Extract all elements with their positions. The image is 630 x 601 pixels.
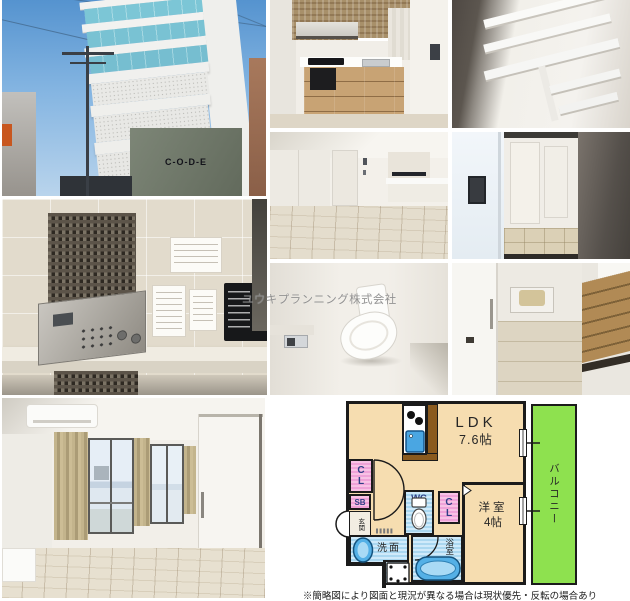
wall-monitor bbox=[430, 44, 440, 60]
kitchen-counter bbox=[402, 404, 427, 455]
right-section bbox=[582, 263, 630, 395]
cabinet-doors bbox=[452, 263, 498, 395]
wc-label: WC bbox=[411, 493, 427, 504]
mosaic-accent-lower bbox=[54, 371, 138, 395]
window-symbol bbox=[519, 497, 527, 525]
toilet-seat-line bbox=[345, 316, 392, 356]
toilet-remote bbox=[284, 335, 308, 348]
side-ledge bbox=[270, 325, 314, 335]
bathroom-label: 浴室 bbox=[444, 538, 454, 555]
building-sign: C-O-D-E bbox=[165, 157, 207, 167]
oven-storage bbox=[310, 68, 336, 90]
hood-edge bbox=[296, 36, 358, 39]
photo-lobby-mailpanel bbox=[2, 199, 267, 395]
shelf-board bbox=[558, 92, 618, 114]
notice-paper bbox=[170, 237, 222, 273]
entrance-label: 玄関 bbox=[356, 518, 363, 531]
floorplan-room-closet-top: CL bbox=[349, 459, 373, 493]
wall-corner bbox=[498, 132, 501, 259]
curtain bbox=[54, 432, 88, 540]
balcony-label: バルコニー bbox=[548, 463, 560, 526]
side-wall bbox=[2, 434, 52, 558]
wood-drawers bbox=[582, 271, 630, 363]
cooktop bbox=[308, 58, 344, 65]
cooktop-edge bbox=[392, 172, 426, 176]
counter-front bbox=[388, 184, 448, 202]
pole-crossarm bbox=[62, 52, 114, 55]
kitchen-sink bbox=[362, 59, 390, 67]
door-frame-dark bbox=[252, 199, 267, 331]
floorplan: CL SB 玄関 WC CL バルコニー LDK bbox=[270, 398, 630, 601]
intercom-panel bbox=[38, 290, 146, 365]
washroom-label: 洗面 bbox=[370, 543, 408, 555]
towel-bar bbox=[490, 299, 493, 329]
wall-segment bbox=[382, 562, 386, 588]
balcony-window bbox=[150, 444, 184, 524]
bedroom-label: 洋室 bbox=[466, 502, 520, 515]
low-cabinet bbox=[2, 548, 36, 582]
door-rail bbox=[199, 414, 263, 417]
shelf-unit bbox=[464, 0, 630, 128]
photo-washroom bbox=[452, 263, 630, 395]
dark-entry-door bbox=[578, 132, 630, 259]
paper-text-lines bbox=[193, 296, 213, 326]
floorplan-balcony: バルコニー bbox=[531, 404, 577, 585]
wall-monitor bbox=[468, 176, 486, 204]
laundry-pan bbox=[510, 287, 554, 313]
window-mullion bbox=[166, 446, 168, 522]
closet-label: CL bbox=[356, 465, 367, 487]
curtain bbox=[184, 446, 196, 514]
pole-crossarm bbox=[70, 62, 106, 64]
cabinet-latch bbox=[466, 337, 474, 343]
orange-sign bbox=[2, 124, 12, 146]
window-mullion bbox=[110, 440, 112, 532]
floorplan-room-closet-bedroom: CL bbox=[438, 491, 460, 524]
shoebox-label: SB bbox=[354, 498, 365, 507]
intercom-unit bbox=[363, 158, 367, 165]
floorplan-room-entrance: 玄関 bbox=[349, 511, 371, 537]
interior-door bbox=[332, 150, 358, 206]
wood-floor bbox=[2, 548, 265, 598]
balcony-window bbox=[88, 438, 134, 534]
interior-door bbox=[544, 146, 568, 218]
corner-shadow bbox=[410, 343, 448, 395]
shelf-divider bbox=[538, 65, 558, 121]
interior-door bbox=[510, 142, 540, 224]
floorplan-room-shoebox: SB bbox=[349, 494, 371, 510]
notice-paper bbox=[189, 289, 217, 331]
floorplan-washroom-extension bbox=[383, 560, 409, 585]
threshold bbox=[504, 254, 578, 259]
photo-entry-hall bbox=[452, 132, 630, 259]
distant-building bbox=[94, 466, 109, 480]
floorplan-room-bathroom bbox=[411, 535, 463, 582]
door-frame-top bbox=[504, 132, 578, 138]
paper-text-lines bbox=[156, 292, 182, 332]
floor bbox=[270, 114, 448, 128]
photo-kitchen bbox=[270, 0, 448, 128]
entrance-glass bbox=[60, 176, 132, 196]
company-watermark: ユウキプランニング株式会社 bbox=[242, 291, 397, 307]
intercom-button bbox=[131, 333, 141, 344]
floorplan-room-wc: WC bbox=[404, 490, 434, 535]
remote-screen bbox=[287, 338, 295, 346]
right-wall bbox=[410, 0, 448, 128]
closet-label: CL bbox=[444, 497, 455, 519]
wood-floor bbox=[270, 206, 448, 259]
ldk-label: LDK bbox=[438, 414, 514, 431]
bedroom-size: 4帖 bbox=[466, 517, 520, 530]
floorplan-room-bedroom bbox=[462, 482, 523, 582]
photo-storage-shelves bbox=[452, 0, 630, 128]
intercom-screen bbox=[53, 312, 73, 326]
stone-floor bbox=[498, 321, 582, 395]
unit-notch bbox=[342, 566, 383, 590]
curtain bbox=[134, 438, 150, 526]
wall-segment bbox=[346, 562, 386, 566]
paper-text-lines bbox=[174, 244, 218, 268]
window-symbol bbox=[519, 429, 527, 457]
photo-ldk-room bbox=[270, 132, 448, 259]
balcony-rail-line bbox=[90, 502, 132, 504]
floorplan-footnote: ※簡略図により図面と現況が異なる場合は現状優先・反転の場合あり bbox=[270, 588, 630, 601]
neighbor-building-right bbox=[249, 58, 266, 196]
light-switch bbox=[363, 170, 366, 175]
photo-main-room bbox=[2, 398, 265, 598]
photo-building-exterior: C-O-D-E bbox=[2, 0, 266, 196]
stone-wall: C-O-D-E bbox=[130, 128, 242, 196]
mosaic-accent-wall bbox=[48, 213, 136, 305]
air-conditioner bbox=[26, 404, 98, 428]
ldk-size: 7.6帖 bbox=[438, 433, 514, 447]
intercom-keypad bbox=[79, 323, 113, 352]
notice-paper bbox=[152, 285, 186, 337]
door-handle bbox=[201, 492, 204, 518]
listing-collage: C-O-D-E bbox=[0, 0, 630, 601]
pan-lid bbox=[519, 290, 545, 306]
photo-toilet bbox=[270, 263, 448, 395]
utility-pole bbox=[86, 46, 89, 196]
shelf-board bbox=[549, 69, 621, 94]
intercom-button bbox=[117, 330, 127, 341]
ac-vent bbox=[33, 420, 91, 423]
